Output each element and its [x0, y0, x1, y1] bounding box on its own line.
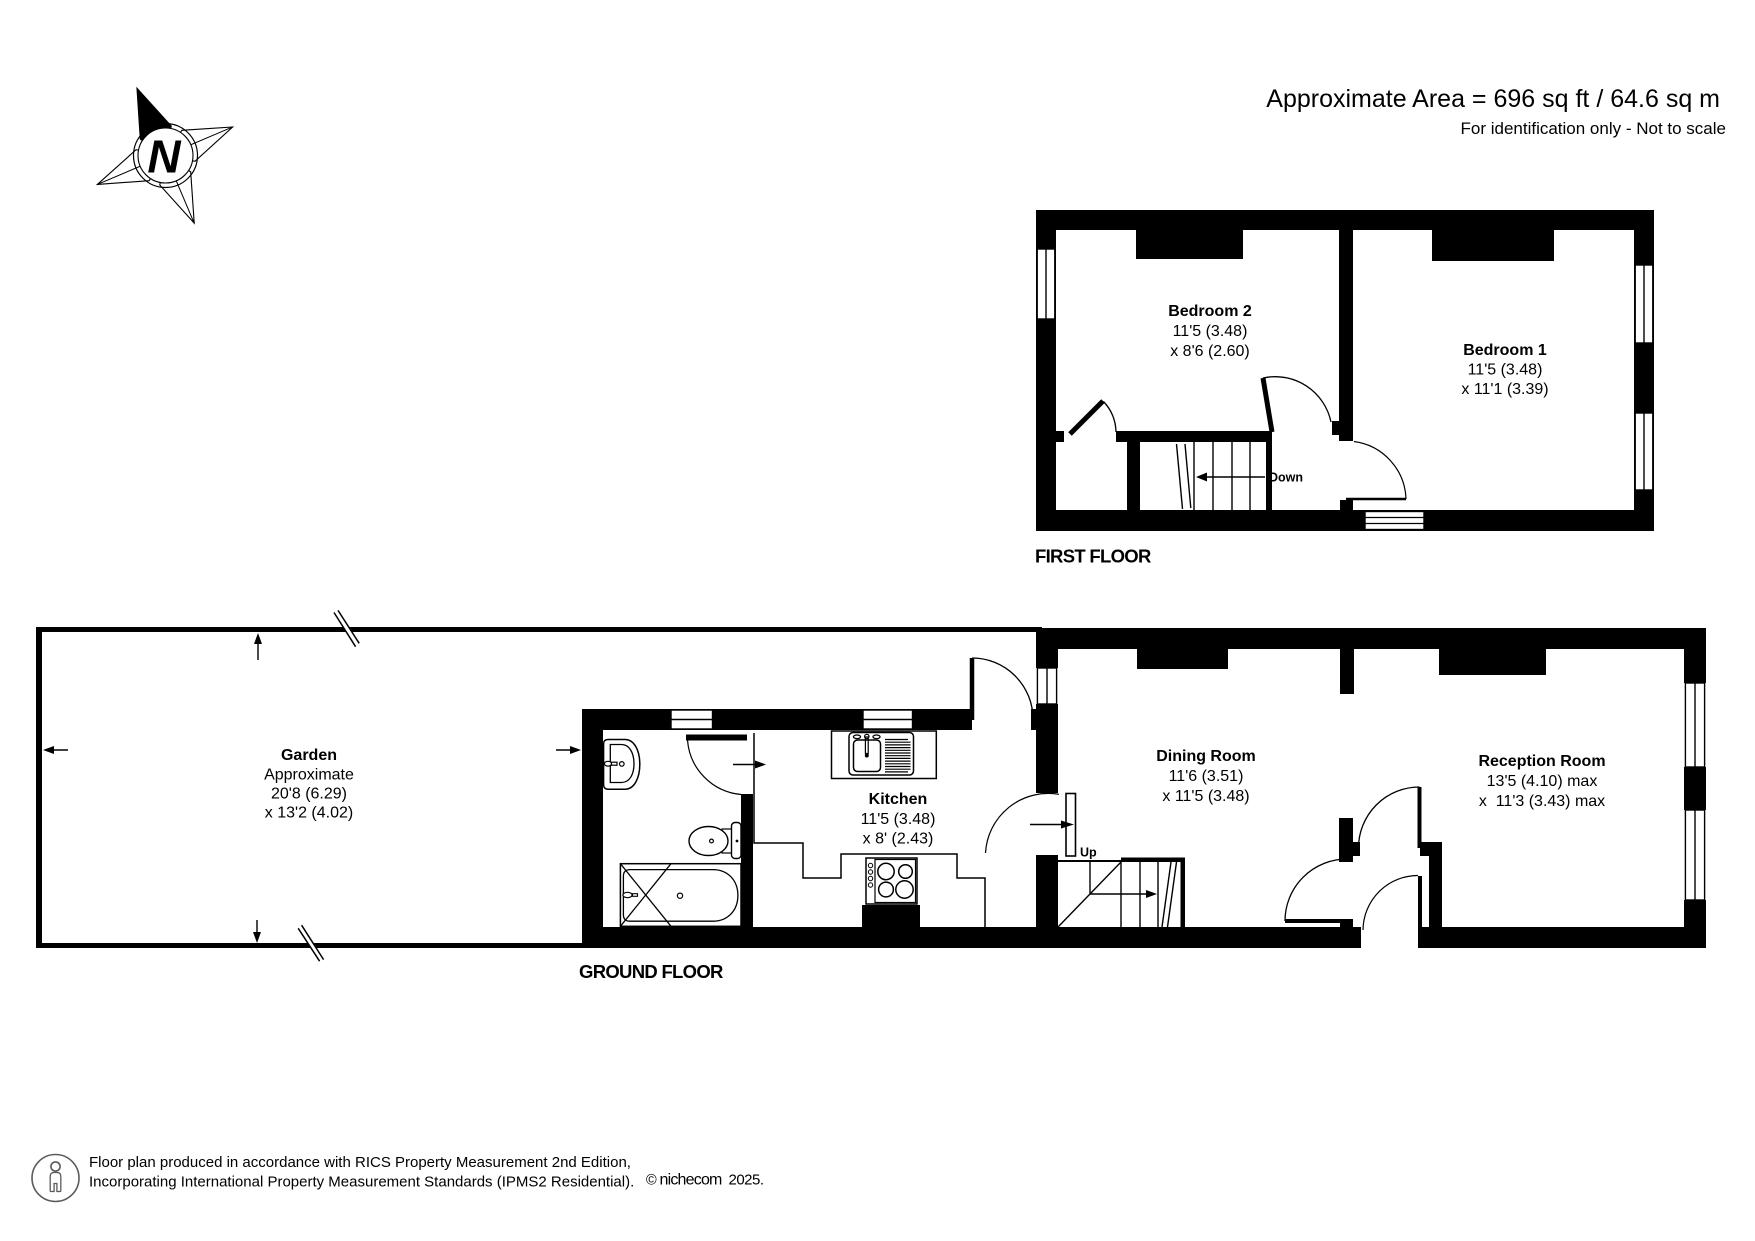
- svg-text:Floor plan produced in accorda: Floor plan produced in accordance with R…: [89, 1154, 631, 1171]
- svg-text:11'5 (3.48): 11'5 (3.48): [1468, 362, 1543, 379]
- svg-text:x 11'5 (3.48): x 11'5 (3.48): [1162, 788, 1249, 805]
- svg-text:13'5 (4.10) max: 13'5 (4.10) max: [1487, 773, 1598, 790]
- svg-text:Down: Down: [1269, 471, 1303, 485]
- svg-text:Garden: Garden: [281, 747, 337, 764]
- svg-text:x 13'2 (4.02): x 13'2 (4.02): [265, 805, 353, 822]
- svg-text:2025.: 2025.: [729, 1172, 764, 1189]
- svg-text:x 8'6 (2.60): x 8'6 (2.60): [1170, 343, 1250, 360]
- svg-text:x 8' (2.43): x 8' (2.43): [863, 831, 934, 848]
- svg-text:x 11'3 (3.43) max: x 11'3 (3.43) max: [1479, 793, 1605, 810]
- svg-text:For identification only - Not: For identification only - Not to scale: [1460, 119, 1726, 138]
- svg-text:Incorporating International Pr: Incorporating International Property Mea…: [89, 1174, 634, 1191]
- svg-text:Bedroom 2: Bedroom 2: [1168, 303, 1252, 320]
- svg-text:nichecom: nichecom: [660, 1172, 723, 1189]
- svg-text:Kitchen: Kitchen: [869, 791, 928, 808]
- svg-text:Dining Room: Dining Room: [1156, 748, 1256, 765]
- svg-text:©: ©: [646, 1173, 657, 1189]
- svg-text:Up: Up: [1080, 846, 1097, 860]
- svg-text:GROUND FLOOR: GROUND FLOOR: [579, 961, 723, 982]
- svg-text:11'5 (3.48): 11'5 (3.48): [1173, 323, 1248, 340]
- svg-text:N: N: [147, 131, 181, 183]
- svg-text:11'6 (3.51): 11'6 (3.51): [1169, 768, 1244, 785]
- svg-text:x 11'1 (3.39): x 11'1 (3.39): [1461, 381, 1548, 398]
- svg-text:Approximate: Approximate: [264, 767, 354, 784]
- svg-text:20'8 (6.29): 20'8 (6.29): [271, 786, 347, 803]
- svg-text:FIRST FLOOR: FIRST FLOOR: [1035, 546, 1151, 567]
- svg-text:Approximate Area = 696 sq ft /: Approximate Area = 696 sq ft / 64.6 sq m: [1266, 85, 1720, 113]
- svg-text:11'5 (3.48): 11'5 (3.48): [861, 811, 936, 828]
- svg-text:Bedroom 1: Bedroom 1: [1463, 342, 1547, 359]
- svg-text:Reception Room: Reception Room: [1478, 753, 1605, 770]
